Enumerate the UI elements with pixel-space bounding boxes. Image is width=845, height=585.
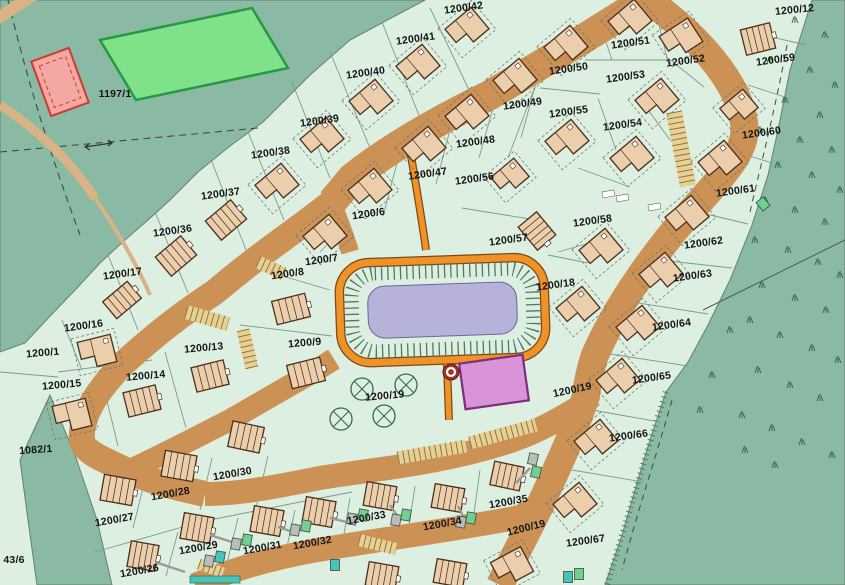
garage	[530, 466, 541, 479]
map-viewport: 1197/11082/143/61200/121200/421200/41120…	[0, 0, 845, 585]
garage	[204, 555, 215, 567]
house-detail	[211, 528, 216, 535]
cadastral-map[interactable]: 1197/11082/143/61200/121200/421200/41120…	[0, 0, 845, 585]
garage	[215, 551, 226, 563]
house-detail	[464, 573, 469, 580]
garage	[466, 512, 477, 524]
house-detail	[78, 402, 83, 407]
house-detail	[333, 512, 338, 519]
house-detail	[194, 466, 199, 473]
garage	[331, 560, 340, 571]
house-detail	[396, 576, 401, 583]
house-detail	[394, 496, 399, 503]
garage	[401, 509, 412, 521]
playground	[459, 355, 529, 409]
garage	[301, 520, 312, 532]
garage	[575, 569, 584, 580]
parcel-label: 1197/1	[99, 88, 132, 100]
garage	[290, 524, 301, 536]
house-detail	[133, 490, 138, 497]
garage	[530, 466, 541, 479]
house-footprint	[433, 559, 467, 585]
house-detail	[261, 437, 266, 444]
garage	[231, 538, 242, 550]
parcel-label: 43/6	[3, 554, 24, 566]
garage	[204, 555, 215, 567]
garage	[215, 551, 226, 563]
garage	[301, 520, 312, 532]
garage	[231, 538, 242, 550]
garage	[290, 524, 301, 536]
pond	[367, 282, 518, 339]
house-detail	[462, 498, 467, 505]
garage	[527, 453, 538, 466]
garage	[564, 572, 573, 583]
garage	[391, 514, 402, 526]
garage	[527, 453, 538, 466]
garage	[575, 569, 584, 580]
house-footprint	[161, 450, 197, 481]
parcel-label: 1082/1	[19, 443, 53, 457]
garage	[564, 572, 573, 583]
garage	[401, 509, 412, 521]
house-footprint	[180, 513, 214, 544]
house-detail	[281, 521, 286, 528]
garage	[466, 512, 477, 524]
garage	[331, 560, 340, 571]
house-footprint	[250, 506, 284, 537]
house-footprint	[100, 474, 136, 505]
house-detail	[103, 338, 108, 343]
garage	[391, 514, 402, 526]
red-marker-icon	[443, 364, 459, 380]
water-strip	[190, 576, 240, 583]
